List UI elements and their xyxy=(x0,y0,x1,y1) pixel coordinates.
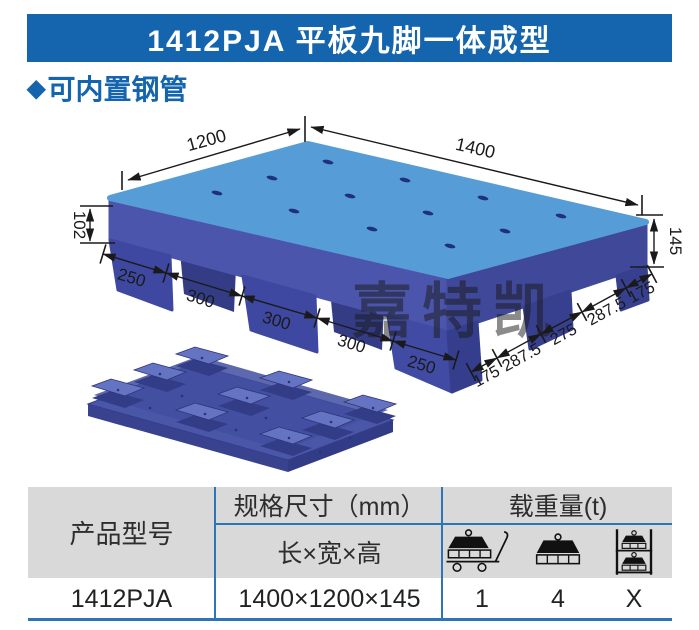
rack-load-value: X xyxy=(596,578,672,620)
col-header-spec-sub: 长×宽×高 xyxy=(217,525,442,578)
table-line-horizontal-header xyxy=(215,523,672,525)
dim-102: 102 xyxy=(70,211,89,239)
product-sheet: 1412PJA 平板九脚一体成型 ◆ 可内置钢管 xyxy=(0,0,699,630)
load-values-row: 1 4 X xyxy=(444,578,672,620)
diamond-bullet-icon: ◆ xyxy=(27,74,45,103)
static-load-icon xyxy=(520,525,596,578)
dim-1200: 1200 xyxy=(184,125,228,155)
pallet-underside-view xyxy=(88,347,396,472)
table-line-vertical-2 xyxy=(441,487,443,618)
rack-load-icon xyxy=(596,525,672,578)
title-bar: 1412PJA 平板九脚一体成型 xyxy=(27,14,672,62)
size-value: 1400×1200×145 xyxy=(217,578,442,620)
pallet-technical-drawing: 1200 1400 102 145 xyxy=(0,100,699,490)
dim-1400: 1400 xyxy=(454,134,498,162)
dynamic-load-value: 1 xyxy=(444,578,520,620)
col-header-load: 载重量(t) xyxy=(444,487,672,523)
model-value: 1412PJA xyxy=(28,578,215,620)
watermark: 嘉特凯 xyxy=(352,278,562,345)
dim-145: 145 xyxy=(666,227,685,255)
col-header-model: 产品型号 xyxy=(28,487,215,578)
page-title: 1412PJA 平板九脚一体成型 xyxy=(147,16,551,60)
dynamic-load-icon xyxy=(444,525,520,578)
col-header-spec: 规格尺寸（mm） xyxy=(217,487,442,523)
spec-table: 产品型号 规格尺寸（mm） 载重量(t) 长×宽×高 xyxy=(28,487,672,621)
load-icons-row xyxy=(444,525,672,578)
static-load-value: 4 xyxy=(520,578,596,620)
table-line-vertical-1 xyxy=(214,487,216,618)
table-line-bottom xyxy=(28,618,672,621)
